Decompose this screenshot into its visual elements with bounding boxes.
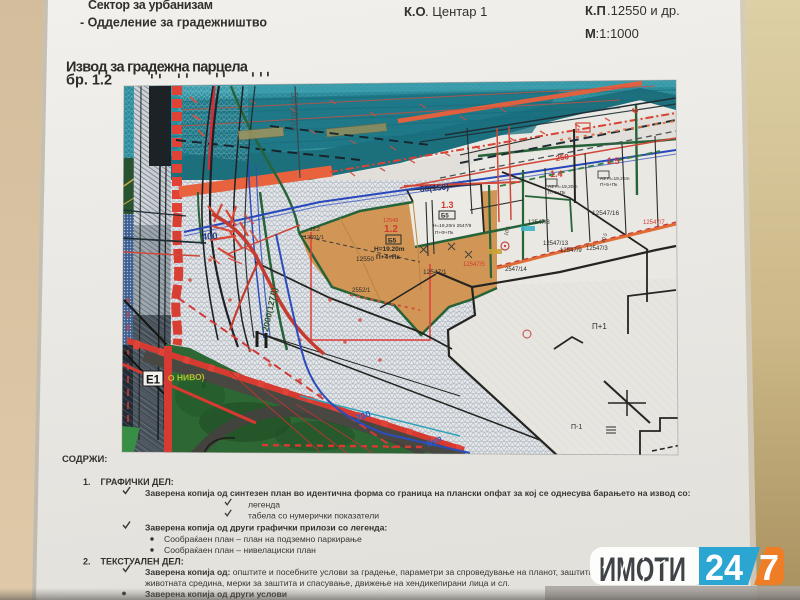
svg-text:К.П: К.П	[585, 3, 606, 18]
svg-text:.12550 и др.: .12550 и др.	[607, 3, 680, 18]
svg-text:ИМОТИ: ИМОТИ	[599, 551, 686, 589]
svg-text:Сообраќаен план – нивелациски: Сообраќаен план – нивелациски план	[164, 545, 316, 555]
svg-text:легенда: легенда	[248, 500, 280, 510]
svg-text:М: М	[585, 26, 596, 41]
svg-text:2. ТЕКСТУАЛЕН ДЕЛ:: 2. ТЕКСТУАЛЕН ДЕЛ:	[83, 557, 184, 567]
svg-text:7: 7	[759, 547, 779, 588]
svg-text:табела со нумерички показатели: табела со нумерички показатели	[248, 511, 379, 521]
svg-text:Заверена копија од: општите и: Заверена копија од: општите и посебните …	[145, 567, 601, 577]
svg-text:бр. 1.2: бр. 1.2	[66, 73, 112, 89]
svg-text:К.О: К.О	[404, 4, 426, 19]
svg-text:животната средина, мерки за за: животната средина, мерки за заштита и сп…	[145, 578, 510, 588]
svg-text:Сектор за урбанизам: Сектор за урбанизам	[88, 0, 213, 12]
svg-text::1:1000: :1:1000	[596, 26, 639, 41]
svg-text:- Одделение за градежништво: - Одделение за градежништво	[80, 16, 267, 30]
svg-text:. Центар 1: . Центар 1	[425, 4, 487, 19]
svg-text:СОДРЖИ:: СОДРЖИ:	[62, 454, 107, 465]
svg-text:Сообраќаен план – план на подз: Сообраќаен план – план на подземно парки…	[164, 534, 362, 544]
svg-text:1. ГРАФИЧКИ ДЕЛ:: 1. ГРАФИЧКИ ДЕЛ:	[83, 477, 174, 487]
svg-text:24: 24	[705, 547, 743, 588]
svg-text:Заверена копија од синтезен пл: Заверена копија од синтезен план во иден…	[145, 488, 691, 498]
svg-text:Заверена копија од други графи: Заверена копија од други графички прилоз…	[145, 523, 387, 533]
